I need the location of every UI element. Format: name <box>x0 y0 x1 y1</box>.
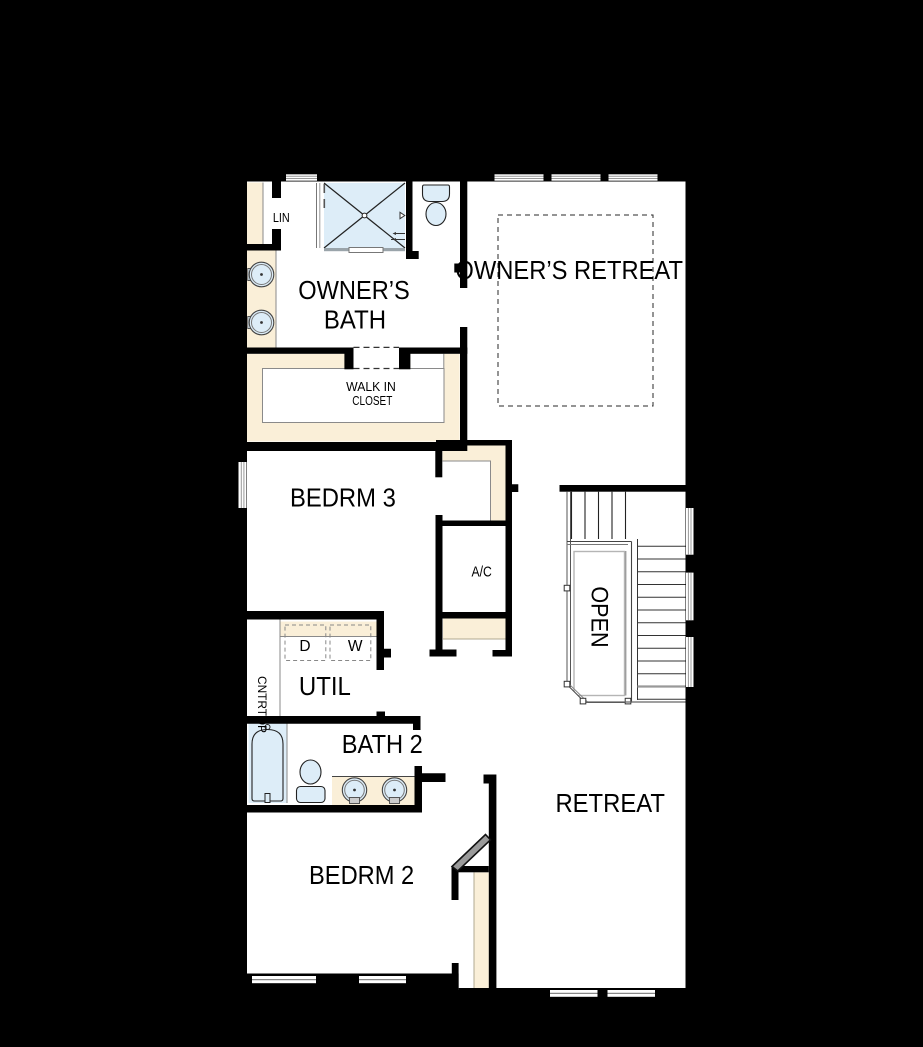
svg-text:A/C: A/C <box>472 565 492 581</box>
svg-text:W: W <box>348 638 363 655</box>
svg-text:BEDRM 2: BEDRM 2 <box>309 860 414 890</box>
svg-text:OPEN: OPEN <box>586 586 613 647</box>
svg-text:LIN: LIN <box>273 211 290 225</box>
svg-text:UTIL: UTIL <box>299 671 351 701</box>
svg-text:OWNER’S: OWNER’S <box>298 275 410 305</box>
svg-text:RETREAT: RETREAT <box>555 788 665 818</box>
svg-text:CLOSET: CLOSET <box>352 394 392 408</box>
svg-text:BATH 2: BATH 2 <box>342 729 423 759</box>
svg-text:BEDRM 3: BEDRM 3 <box>290 483 396 513</box>
svg-text:CNTRTOP: CNTRTOP <box>255 676 267 733</box>
svg-text:D: D <box>299 638 310 655</box>
svg-text:BATH: BATH <box>324 305 386 335</box>
svg-text:WALK IN: WALK IN <box>346 380 396 394</box>
svg-text:OWNER’S RETREAT: OWNER’S RETREAT <box>455 255 683 285</box>
